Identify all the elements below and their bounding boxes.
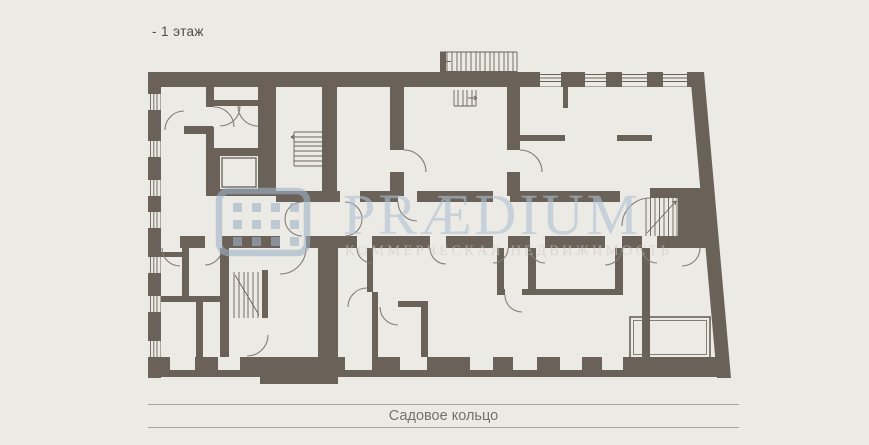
street-label: Садовое кольцо	[389, 408, 498, 424]
staircase-entry-inner	[454, 90, 477, 106]
street-label-bar: Садовое кольцо	[148, 404, 739, 428]
entrance-vestibule-block	[260, 357, 338, 384]
watermark: PRÆDIUM КОММЕРЧЕСКАЯ НЕДВИЖИМОСТЬ	[219, 182, 672, 259]
staircase-upper-left	[291, 132, 322, 166]
floor-plan-page: - 1 этаж	[0, 0, 869, 440]
watermark-tagline: КОММЕРЧЕСКАЯ НЕДВИЖИМОСТЬ	[345, 243, 672, 259]
floor-plan: PRÆDIUM КОММЕРЧЕСКАЯ НЕДВИЖИМОСТЬ	[0, 0, 869, 445]
staircase-right	[646, 198, 677, 236]
elevator-cab-outline	[222, 158, 256, 187]
floor-plan-svg: PRÆDIUM КОММЕРЧЕСКАЯ НЕДВИЖИМОСТЬ	[0, 0, 869, 440]
staircase-top-exterior	[440, 52, 517, 72]
watermark-brand: PRÆDIUM	[343, 182, 641, 247]
staircase-lower-left	[234, 272, 259, 318]
